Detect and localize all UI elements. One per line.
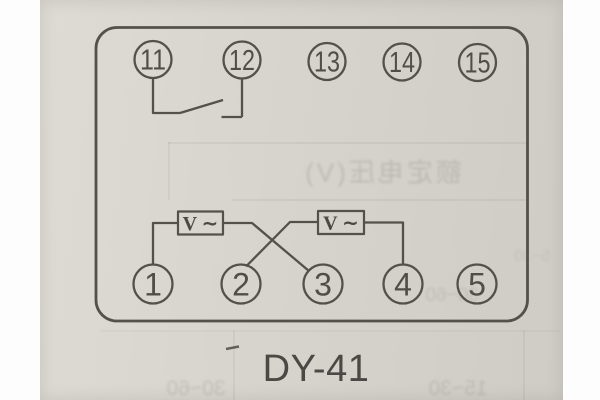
- wire-terminal2-to-voltmeter-right: [246, 222, 318, 267]
- photo-of-book-page: 额定电压(V) 30~60 5~30 30~60 15~30 11 12 13 …: [0, 0, 600, 400]
- voltmeter-right-label: V ∼: [323, 213, 359, 235]
- terminal-label-12: 12: [229, 45, 255, 77]
- wire-terminal11-lead: [153, 78, 180, 113]
- terminal-label-11: 11: [140, 45, 166, 77]
- wire-voltmeter-right-to-terminal4: [364, 223, 403, 265]
- terminal-label-1: 1: [144, 267, 162, 303]
- wire-terminal1-to-voltmeter-left: [153, 223, 178, 265]
- terminal-label-14: 14: [389, 47, 415, 79]
- terminal-label-15: 15: [465, 48, 491, 80]
- voltmeter-left-label: V ∼: [183, 213, 219, 235]
- terminal-label-5: 5: [468, 267, 486, 303]
- terminal-label-2: 2: [232, 267, 250, 303]
- relay-terminal-diagram: 11 12 13 14 15 V ∼ V ∼ 1 2 3 4 5: [0, 0, 600, 400]
- stray-print-mark: [226, 347, 239, 350]
- terminal-label-4: 4: [394, 267, 412, 303]
- terminal-label-13: 13: [314, 47, 340, 79]
- terminal-label-3: 3: [314, 267, 332, 303]
- contact-blade: [180, 100, 223, 113]
- figure-caption: DY-41: [263, 348, 370, 390]
